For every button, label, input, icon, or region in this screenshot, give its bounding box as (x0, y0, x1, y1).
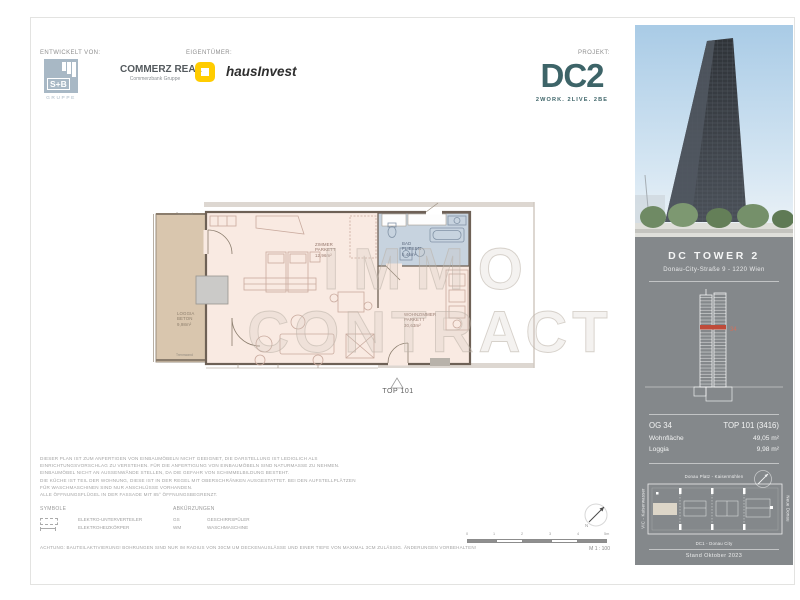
partition-label-bottom: Trennwand (176, 353, 193, 357)
living-area-label: Wohnfläche (649, 435, 684, 442)
caution-note: ACHTUNG: BAUTEILAKTIVIERUNG! BOHRUNGEN S… (40, 545, 476, 550)
floor-label: OG 34 (649, 421, 672, 430)
symbol-label: ELEKTROHEIZKÖRPER (78, 525, 129, 530)
room-label-zimmer: ZIMMER PARKETT 12,96m² (315, 242, 336, 258)
room-label-bad: BAD FLIESEN 5,46m² (402, 241, 421, 257)
sb-logo-bar-icon (72, 62, 76, 77)
sb-logo-bar-icon (67, 62, 71, 74)
sb-gruppe-logo: S+B (44, 59, 78, 93)
loggia-label: Loggia (649, 446, 669, 453)
abbreviations-header: ABKÜRZUNGEN (173, 506, 215, 512)
building-address: Donau-City-Straße 9 - 1220 Wien (635, 267, 793, 273)
scalebar (467, 539, 607, 543)
loggia-value: 9,98 m² (757, 446, 779, 453)
hausinvest-logo: hausInvest (226, 64, 297, 79)
room-label-loggia: LOGGIA BETON 9,98m² (177, 311, 194, 327)
owner-label: EIGENTÜMER: (186, 50, 232, 56)
dc2-tagline: 2WORK. 2LIVE. 2BE (524, 97, 620, 103)
floorplan-drawing (148, 200, 538, 395)
date-note: Stand Oktober 2023 (635, 553, 793, 559)
siteplan-label-east: Neue Donau (786, 481, 791, 537)
project-label: PROJEKT: (578, 50, 610, 56)
room-label-wohnzimmer: WOHNZIMMER PARKETT 30,63m² (404, 312, 436, 328)
legal-text-block: DIESER PLAN IST ZUM ANFERTIGEN VON EINBA… (40, 455, 356, 498)
abbr-gs-label: GESCHIRRSPÜLER (207, 517, 250, 522)
commerz-real-logo: COMMERZ REAL (120, 64, 202, 75)
siteplan-drawing (646, 482, 784, 540)
tower-photo (635, 25, 793, 237)
info-row-floor: OG 34 TOP 101 (3416) (649, 421, 779, 430)
unit-label: TOP 101 (3416) (723, 421, 779, 430)
scale-label: M 1 : 100 (566, 546, 610, 552)
commerzbank-ring-icon (195, 62, 215, 82)
abbr-wm-label: WASCHMASCHINE (207, 525, 248, 530)
svg-text:N: N (585, 523, 588, 528)
sb-logo-text: S+B (47, 78, 70, 90)
svg-text:34: 34 (730, 327, 737, 333)
abbr-wm: WM (173, 525, 181, 530)
commerzbank-gruppe-label: Commerzbank Gruppe (120, 76, 190, 82)
symbols-header: SYMBOLE (40, 506, 66, 512)
info-row-living-area: Wohnfläche 49,05 m² (649, 435, 779, 442)
scalebar-ticks: 0 1 2 3 4 5m (466, 532, 616, 538)
info-row-loggia: Loggia 9,98 m² (649, 446, 779, 453)
electro-subdistributor-icon (40, 518, 58, 525)
building-cross-section: 34 (640, 287, 788, 409)
electric-radiator-icon (40, 528, 56, 529)
sb-logo-bar-icon (62, 62, 66, 71)
dc2-logo: DC2 (536, 57, 608, 95)
abbr-gs: GS (173, 517, 180, 522)
sb-gruppe-label: GRUPPE (44, 96, 78, 101)
divider (649, 549, 779, 550)
siteplan-label-north: Donau Platz - Kaisermühlen (635, 474, 793, 479)
building-name: DC TOWER 2 (635, 250, 793, 262)
siteplan-label-south: DC1 - Donau City (635, 541, 793, 546)
symbol-label: ELEKTRO-UNTERVERTEILER (78, 517, 142, 522)
divider (649, 281, 779, 282)
divider (649, 414, 779, 415)
partition-label-top: Trennwand (176, 212, 193, 216)
unit-marker-label: TOP 101 (366, 388, 430, 395)
siteplan-label-west: VIC - Kaiserwasser (641, 481, 646, 537)
developed-by-label: ENTWICKELT VON: (40, 50, 100, 56)
divider (649, 463, 779, 464)
north-arrow-icon: N (583, 502, 611, 530)
living-area-value: 49,05 m² (753, 435, 779, 442)
page: ENTWICKELT VON: S+B GRUPPE EIGENTÜMER: C… (0, 0, 800, 600)
